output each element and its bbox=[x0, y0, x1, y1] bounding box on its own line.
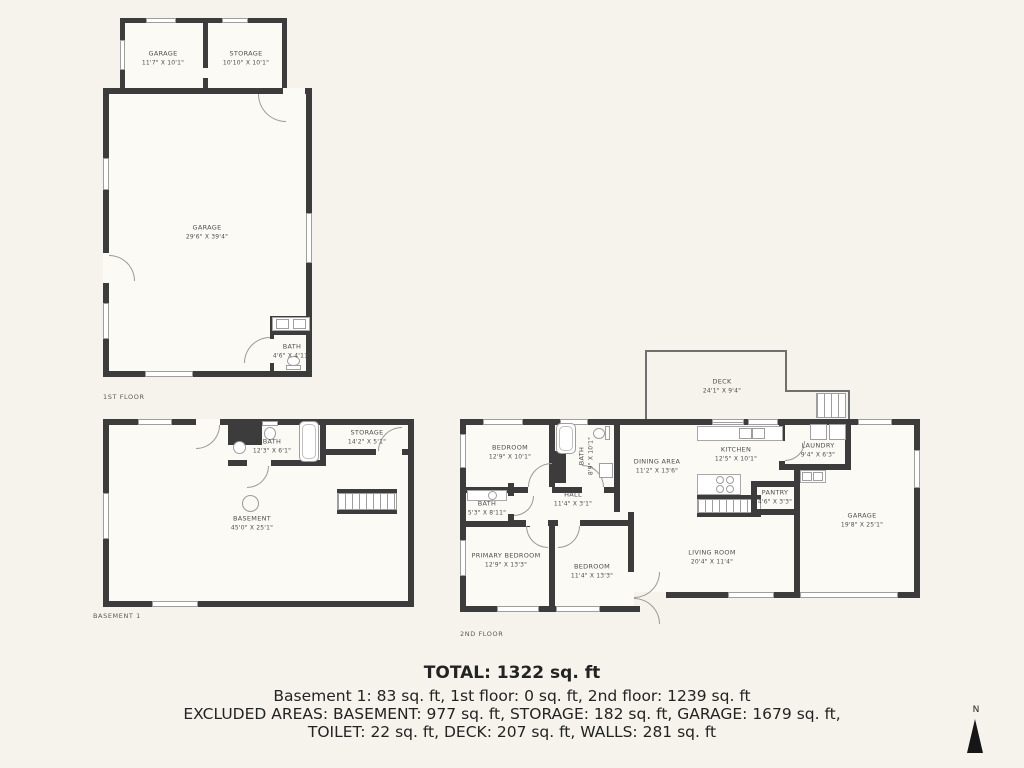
compass-north-label: N bbox=[969, 705, 983, 715]
north-arrow-icon bbox=[967, 719, 983, 753]
room-label-living: LIVING ROOM 20'4" X 11'4" bbox=[688, 547, 736, 566]
wall bbox=[460, 419, 920, 425]
wall bbox=[203, 20, 208, 68]
room-label-deck: DECK 24'1" X 9'4" bbox=[703, 376, 741, 395]
fixture bbox=[299, 421, 319, 462]
window bbox=[145, 371, 193, 377]
wall bbox=[628, 512, 634, 572]
wall bbox=[282, 18, 287, 90]
room-label-storage-basement: STORAGE 14'2" X 5'1" bbox=[348, 427, 386, 446]
deck-wall bbox=[785, 390, 850, 392]
window bbox=[460, 540, 466, 576]
wall bbox=[549, 526, 555, 606]
wall bbox=[103, 371, 312, 377]
wall bbox=[337, 510, 397, 514]
window bbox=[914, 450, 920, 488]
room-label-pantry: PANTRY 4'6" X 3'3" bbox=[758, 487, 792, 506]
wall-opening bbox=[283, 88, 305, 94]
window bbox=[483, 419, 523, 425]
fixture bbox=[752, 428, 765, 439]
window bbox=[152, 601, 198, 607]
room-label-dining: DINING AREA 11'2" X 13'6" bbox=[634, 456, 680, 475]
window bbox=[748, 419, 778, 425]
fixture bbox=[739, 428, 752, 439]
deck-wall bbox=[848, 390, 850, 419]
room-label-bedroom2: BEDROOM 11'4" X 13'3" bbox=[571, 561, 613, 580]
wall bbox=[103, 601, 414, 607]
deck-wall bbox=[645, 350, 647, 419]
room-label-bath-basement: BATH 12'3" X 6'1" bbox=[253, 436, 291, 455]
room-label-hall: HALL 11'4" X 3'1" bbox=[554, 489, 592, 508]
room-label-bath-1st: BATH 4'6" X 4'11" bbox=[273, 341, 311, 360]
door-arc bbox=[634, 598, 660, 624]
fixture bbox=[556, 423, 576, 454]
fixture bbox=[262, 421, 278, 426]
first-floor-label: 1ST FLOOR bbox=[103, 393, 145, 401]
fixture bbox=[726, 485, 734, 493]
room-label-laundry: LAUNDRY 9'4" X 6'3" bbox=[801, 440, 835, 459]
room-label-bedroom: BEDROOM 12'9" X 10'1" bbox=[489, 442, 531, 461]
fixture bbox=[276, 319, 289, 329]
wall bbox=[614, 425, 620, 512]
fixture bbox=[829, 424, 846, 440]
wall-opening bbox=[528, 487, 552, 493]
second-floor-label: 2ND FLOOR bbox=[460, 630, 503, 638]
room-label-garage-2nd: GARAGE 19'8" X 25'1" bbox=[841, 510, 883, 529]
window bbox=[103, 303, 109, 339]
fixture bbox=[802, 472, 812, 481]
sliding-door bbox=[712, 419, 744, 425]
stairs bbox=[337, 493, 397, 510]
window bbox=[306, 213, 312, 263]
stairs bbox=[816, 393, 846, 418]
window bbox=[103, 158, 109, 190]
window bbox=[103, 493, 109, 539]
wall bbox=[460, 606, 640, 612]
summary-excluded-2: TOILET: 22 sq. ft, DECK: 207 sq. ft, WAL… bbox=[0, 723, 1024, 741]
fixture bbox=[716, 485, 724, 493]
room-label-primary-bedroom: PRIMARY BEDROOM 12'9" X 13'3" bbox=[472, 550, 541, 569]
room-label-bath-main: BATH 8'9" X 10'1" bbox=[576, 437, 595, 475]
wall bbox=[408, 419, 414, 607]
door-arc bbox=[634, 572, 660, 598]
fixture bbox=[726, 476, 734, 484]
fixture bbox=[716, 476, 724, 484]
window bbox=[556, 606, 600, 612]
wall bbox=[914, 419, 920, 598]
wall bbox=[320, 419, 326, 466]
window bbox=[800, 592, 898, 598]
fixture bbox=[233, 441, 246, 454]
fixture bbox=[599, 463, 613, 478]
deck-wall bbox=[645, 350, 787, 352]
room-label-garage-main: GARAGE 29'6" X 39'4" bbox=[186, 222, 228, 241]
room-label-bath-small: BATH 5'3" X 8'11" bbox=[468, 498, 506, 517]
deck-wall bbox=[785, 350, 787, 392]
basement-label: BASEMENT 1 bbox=[93, 612, 141, 620]
room-label-basement: BASEMENT 45'0" X 25'1" bbox=[231, 513, 273, 532]
fixture bbox=[605, 426, 610, 440]
fixture bbox=[813, 472, 823, 481]
wall bbox=[794, 470, 800, 598]
window bbox=[460, 434, 466, 468]
wall bbox=[751, 481, 800, 487]
window bbox=[120, 40, 125, 70]
summary-total: TOTAL: 1322 sq. ft bbox=[0, 663, 1024, 683]
room-label-garage-outbuilding: GARAGE 11'7" X 10'1" bbox=[142, 48, 184, 67]
window bbox=[222, 18, 248, 23]
wall bbox=[751, 509, 800, 515]
fixture bbox=[293, 319, 306, 329]
room-label-storage-outbuilding: STORAGE 10'10" X 10'1" bbox=[223, 48, 269, 67]
utility-symbol bbox=[242, 495, 259, 512]
wall bbox=[270, 331, 312, 335]
room-label-kitchen: KITCHEN 12'5" X 10'1" bbox=[715, 444, 757, 463]
summary-floors: Basement 1: 83 sq. ft, 1st floor: 0 sq. … bbox=[0, 687, 1024, 705]
floorplan-canvas: GARAGE 11'7" X 10'1" STORAGE 10'10" X 10… bbox=[0, 0, 1024, 768]
summary-excluded-1: EXCLUDED AREAS: BASEMENT: 977 sq. ft, ST… bbox=[0, 705, 1024, 723]
window bbox=[728, 592, 774, 598]
window bbox=[146, 18, 176, 23]
window bbox=[858, 419, 892, 425]
window bbox=[497, 606, 539, 612]
fixture bbox=[286, 365, 301, 370]
fixture bbox=[810, 424, 827, 440]
window bbox=[138, 419, 172, 425]
